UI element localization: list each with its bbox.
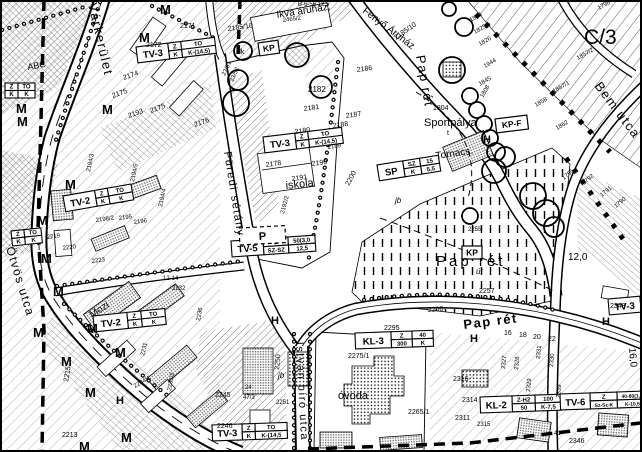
parcel-number-label: 2255 [468, 227, 482, 233]
parcel-number-label: 16,0 [626, 347, 639, 368]
zone-marker-M: M [65, 177, 76, 192]
parcel-number-label: 2348 [610, 303, 626, 310]
parcel-number-label: 2257 [479, 288, 495, 295]
parcel-number-label: 2232 [172, 286, 186, 292]
parcel-number-label: 2315 [477, 422, 491, 428]
svg-text:KL-2: KL-2 [486, 400, 507, 412]
svg-text:KL-3: KL-3 [363, 336, 384, 348]
parcel-number-label: 22 [548, 336, 556, 343]
parcel-number-label: 24 [245, 385, 252, 391]
label-district-c3: C/3 [584, 26, 617, 49]
svg-text:300: 300 [397, 341, 408, 347]
svg-text:KP: KP [262, 42, 275, 54]
svg-text:100: 100 [543, 397, 554, 403]
zone-box-small-a: Z TO K K [5, 83, 35, 98]
parcel-number-label: 2314 [462, 397, 478, 404]
label-ovoda: óvoda [338, 390, 369, 402]
svg-text:TV-6: TV-6 [565, 397, 585, 409]
svg-text:K: K [9, 92, 14, 98]
parcel-number-label: 2171 [180, 23, 196, 30]
parcel-number-label: 2213 [62, 432, 78, 439]
zone-marker-H: H [602, 316, 610, 328]
parcel-number-label: 41 [554, 431, 561, 437]
zone-box-kl2: KL-2 Z-H2 100 50 K-7,5 [480, 394, 562, 413]
parcel-number-label: jb [277, 371, 285, 380]
zone-marker-M: M [61, 354, 72, 369]
parcel-number-label: 2295 [384, 325, 400, 332]
parcel-number-label: 2265/1 [408, 409, 430, 416]
svg-text:TO: TO [28, 230, 37, 237]
parcel-number-label: t [447, 130, 449, 137]
svg-text:TO: TO [321, 131, 330, 138]
parcel-number-label: 2200 [428, 306, 444, 314]
zone-marker-M: M [17, 114, 28, 129]
svg-text:SZ: SZ [408, 161, 417, 168]
zone-marker-M: M [37, 213, 48, 228]
parcel-number-label: 2275/1 [348, 353, 370, 360]
parcel-number-label: 20 [533, 334, 541, 341]
parcel-number-label: 2327 [501, 355, 508, 369]
zone-marker-M: M [139, 30, 150, 45]
svg-text:TO: TO [149, 311, 158, 318]
svg-text:TO: TO [267, 425, 276, 431]
zone-marker-M: M [160, 2, 171, 17]
zone-marker-H: H [483, 134, 491, 146]
parcel-number-label: 2182 [308, 85, 326, 94]
parcel-number-label: 2331 [536, 345, 543, 359]
zone-marker-M: M [121, 430, 132, 445]
parcel-number-label: 2330 [549, 353, 556, 367]
parcel-number-label: 16 [504, 330, 512, 337]
sports-building [443, 62, 461, 77]
svg-text:Sz-Sz-K: Sz-Sz-K [595, 402, 614, 409]
zone-marker-M: M [33, 325, 44, 340]
svg-text:TO: TO [194, 41, 203, 48]
parcel-number-label: 2245 [215, 392, 231, 399]
parcel-number-label: 2311 [455, 415, 470, 422]
parcel-number-label: 2328 [514, 356, 521, 370]
zone-marker-H: H [116, 395, 124, 407]
svg-text:K: K [24, 92, 29, 98]
parcel-number-label: 2346 [569, 438, 585, 445]
label-pap-ret-park: Pap rét [436, 253, 505, 270]
svg-text:P: P [259, 231, 267, 243]
parcel-number-label: 2316 [453, 376, 469, 383]
kp-box-a: KP [258, 40, 280, 56]
parcel-number-label: 18 [519, 332, 527, 339]
zoning-map-page: TV-3 Z TO K K-(14,5) TV-3 Z TO K K-(14,5… [0, 0, 642, 452]
svg-text:50: 50 [520, 406, 528, 412]
svg-text:K-10,5: K-10,5 [625, 401, 640, 408]
svg-text:Z: Z [400, 334, 404, 340]
zone-box-tv6: TV-6 Z 40-80(1,8 Sz-Sz-K K-10,5 [560, 391, 642, 410]
parcel-number-label: 12,0 [568, 252, 588, 263]
zone-marker-M: M [53, 284, 64, 299]
zone-box-small-b: Z TO K K [11, 228, 42, 246]
svg-text:K-(14,5: K-(14,5 [261, 433, 282, 440]
zone-marker-M: M [41, 251, 52, 266]
parcel-number-label: út [476, 267, 483, 276]
svg-text:Z: Z [10, 85, 14, 91]
zone-marker-M: M [102, 102, 113, 117]
svg-text:40: 40 [419, 333, 427, 339]
svg-text:12,5: 12,5 [296, 246, 309, 253]
parcel-number-label: 12-14 [163, 276, 179, 282]
svg-text:50(3,0: 50(3,0 [293, 238, 311, 245]
svg-text:Z-H2: Z-H2 [517, 397, 531, 403]
svg-text:TO: TO [22, 85, 31, 91]
parcel-number-label: 47/3 [243, 395, 255, 401]
svg-text:SP: SP [384, 166, 399, 179]
zone-marker-M: M [115, 345, 126, 360]
label-sportpalya: Sportpálya [424, 117, 477, 129]
svg-text:K-7,5: K-7,5 [541, 405, 557, 412]
zone-marker-H: H [470, 333, 478, 345]
parcel-number-label: B-6-56 12,5 [298, 2, 330, 8]
zoning-map: TV-3 Z TO K K-(14,5) TV-3 Z TO K K-(14,5… [0, 0, 642, 452]
parcel-number-label: 2246 [217, 423, 233, 430]
svg-text:TV-2: TV-2 [100, 317, 121, 330]
zone-marker-H: H [271, 315, 279, 327]
svg-text:SZ-SZ: SZ-SZ [267, 247, 285, 254]
parcel-number-label: dk [237, 49, 245, 56]
parcel-number-label: 2339 [556, 384, 563, 398]
parcel-number-label: jb [394, 196, 402, 205]
parcel-number-label: 2329 [526, 378, 533, 392]
svg-text:Z: Z [602, 395, 606, 401]
parcel-number-label: 2251 [276, 400, 290, 406]
zone-marker-M: M [87, 321, 98, 336]
parcel-number-label: 2250 [274, 354, 282, 370]
parcel-number-label: 1804 [433, 105, 449, 112]
zone-marker-M: M [85, 385, 96, 400]
zone-box-kl3: KL-3 Z 40 300 K [355, 330, 434, 349]
svg-text:Z: Z [247, 426, 251, 432]
svg-text:40-80(1,8: 40-80(1,8 [621, 393, 642, 400]
